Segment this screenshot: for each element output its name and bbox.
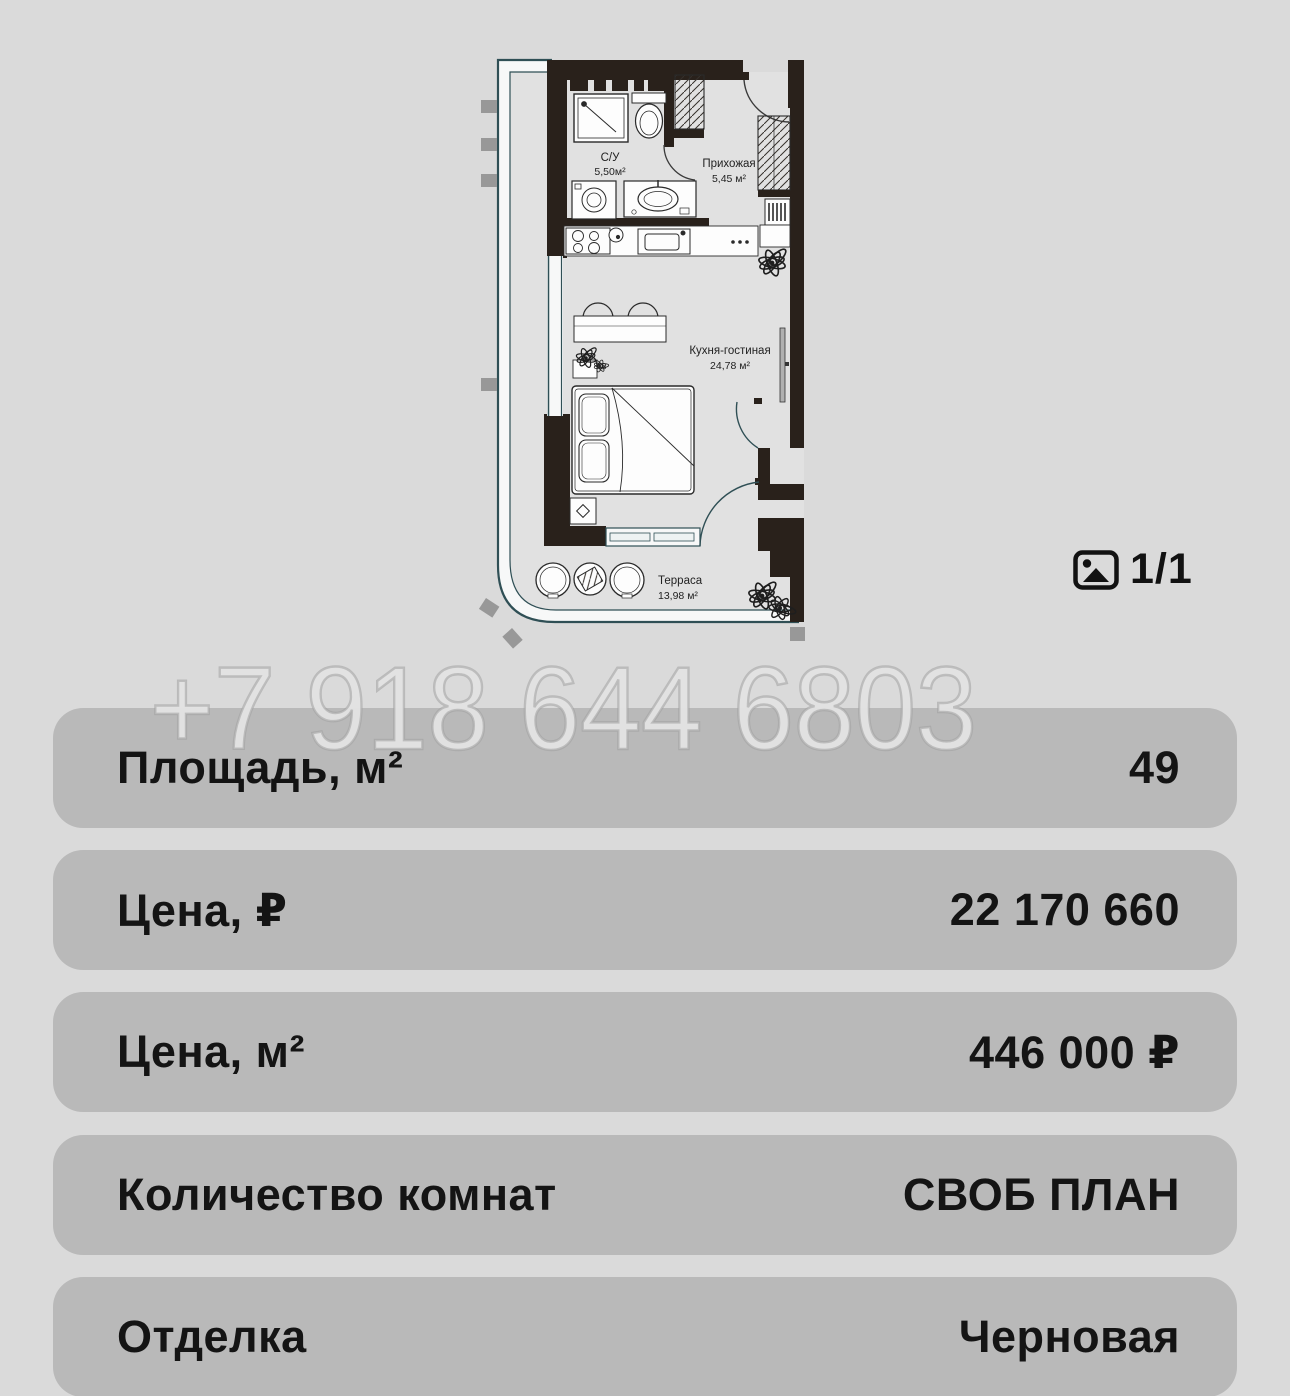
row-value: 22 170 660 — [950, 884, 1180, 936]
left-window — [547, 256, 563, 416]
bed — [572, 386, 694, 494]
room-area-kitchen: 24,78 м² — [710, 360, 750, 372]
floorplan-image[interactable]: С/У 5,50м² Прихожая 5,45 м² Кухня-гостин… — [452, 28, 837, 658]
row-label: Площадь, м² — [117, 742, 403, 794]
room-label-kitchen: Кухня-гостиная — [689, 345, 770, 357]
listing-page: С/У 5,50м² Прихожая 5,45 м² Кухня-гостин… — [0, 0, 1290, 1396]
hall-wardrobe-right — [758, 116, 790, 247]
row-value: 49 — [1129, 742, 1180, 794]
terrace-chairs — [536, 563, 644, 598]
room-area-terrace: 13,98 м² — [658, 590, 698, 602]
room-area-hall: 5,45 м² — [712, 173, 747, 185]
detail-row-price-per-m2: Цена, м² 446 000 ₽ — [53, 992, 1237, 1112]
nightstand — [570, 498, 596, 524]
kitchen-counter — [564, 226, 758, 256]
row-label: Отделка — [117, 1311, 307, 1363]
detail-row-rooms: Количество комнат СВОБ ПЛАН — [53, 1135, 1237, 1255]
photo-counter-text: 1/1 — [1130, 545, 1193, 594]
hall-wardrobe-top — [675, 75, 704, 129]
terrace-window — [606, 528, 700, 546]
row-value: СВОБ ПЛАН — [903, 1169, 1180, 1221]
row-label: Цена, ₽ — [117, 884, 287, 937]
room-area-bathroom: 5,50м² — [594, 166, 626, 178]
room-label-hall: Прихожая — [702, 158, 755, 170]
room-label-bathroom: С/У — [601, 152, 621, 164]
detail-row-price: Цена, ₽ 22 170 660 — [53, 850, 1237, 970]
row-value: Черновая — [959, 1311, 1180, 1363]
row-value: 446 000 ₽ — [969, 1026, 1180, 1079]
photo-counter: 1/1 — [1072, 545, 1193, 594]
row-label: Количество комнат — [117, 1169, 557, 1221]
row-label: Цена, м² — [117, 1026, 305, 1078]
detail-row-finishing: Отделка Черновая — [53, 1277, 1237, 1396]
room-label-terrace: Терраса — [658, 575, 703, 587]
photos-icon — [1072, 549, 1120, 591]
